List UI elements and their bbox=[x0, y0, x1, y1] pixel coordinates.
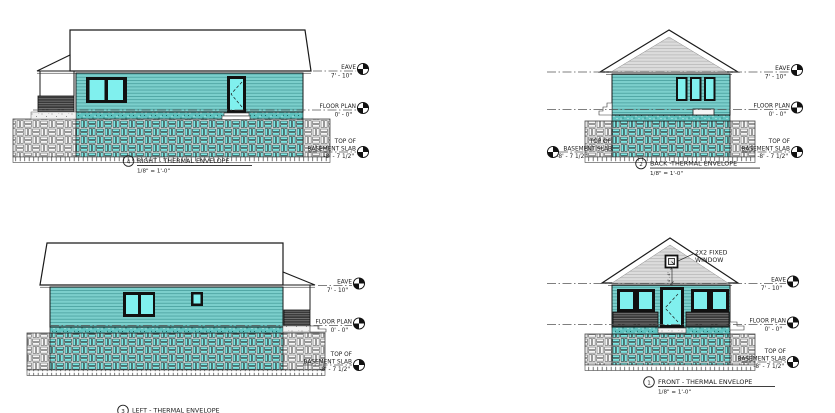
level-value: 7' - 10" bbox=[331, 74, 352, 80]
back-elevation-view: EAVE 7' - 10" FLOOR PLAN 0' - 0" TOP OF … bbox=[420, 0, 835, 200]
level-label: EAVE bbox=[341, 65, 356, 71]
datum-icon bbox=[787, 317, 798, 328]
datum-icon bbox=[353, 278, 364, 289]
window-pair bbox=[123, 292, 155, 317]
datum-icon bbox=[791, 102, 802, 113]
view-title-text: LEFT - THERMAL ENVELOPE bbox=[132, 407, 220, 413]
dimension-text: 4' - 4" bbox=[667, 271, 671, 282]
level-label: BASEMENT SLAB bbox=[303, 359, 352, 365]
porch-railing-left bbox=[613, 312, 658, 326]
view-number: 1 bbox=[647, 380, 651, 386]
level-label: BASEMENT SLAB bbox=[737, 356, 786, 362]
datum-icon bbox=[357, 146, 368, 157]
level-label: BASEMENT SLAB bbox=[741, 146, 790, 152]
level-value: -8' - 7 1/2" bbox=[556, 154, 587, 160]
foundation bbox=[27, 333, 325, 376]
roof bbox=[37, 30, 311, 73]
level-label: EAVE bbox=[771, 277, 786, 283]
porch-railing bbox=[284, 310, 310, 326]
level-label: TOP OF bbox=[589, 139, 611, 145]
porch-floor bbox=[31, 112, 76, 119]
level-label-floor: FLOOR PLAN 0' - 0" bbox=[319, 102, 368, 118]
roof bbox=[600, 30, 738, 75]
view-scale: 1/8" = 1'-0" bbox=[650, 171, 683, 177]
level-label: EAVE bbox=[337, 279, 352, 285]
view-number: 4 bbox=[127, 159, 131, 165]
porch-roof bbox=[283, 272, 315, 285]
level-label: EAVE bbox=[775, 66, 790, 72]
level-label: FLOOR PLAN bbox=[319, 104, 356, 110]
level-value: 0' - 0" bbox=[769, 112, 787, 118]
small-window bbox=[191, 292, 203, 306]
level-label-floor: FLOOR PLAN 0' - 0" bbox=[753, 102, 802, 118]
datum-icon bbox=[357, 63, 368, 74]
rim-band bbox=[612, 115, 730, 121]
left-elevation-view: EAVE 7' - 10" FLOOR PLAN 0' - 0" TOP OF … bbox=[0, 210, 420, 413]
right-elevation-view: EAVE 7' - 10" FLOOR PLAN 0' - 0" TOP OF … bbox=[0, 0, 420, 200]
level-label: TOP OF bbox=[764, 349, 786, 355]
foundation bbox=[13, 119, 330, 163]
foundation bbox=[585, 334, 755, 371]
view-title-text: FRONT - THERMAL ENVELOPE bbox=[658, 378, 752, 386]
level-label: TOP OF bbox=[768, 139, 790, 145]
steps bbox=[310, 326, 326, 332]
level-value: -8' - 7 1/2" bbox=[319, 367, 350, 373]
rim-band bbox=[50, 327, 283, 333]
front-elevation-view: 4' - 4" 2X2 FIXED WINDOW EAVE 7' - 10" F… bbox=[420, 210, 835, 413]
level-label: FLOOR PLAN bbox=[753, 103, 790, 109]
window-pair bbox=[86, 77, 127, 103]
level-value: 7' - 10" bbox=[761, 286, 782, 292]
gable-window bbox=[666, 256, 678, 268]
view-scale: 1/8" = 1'-0" bbox=[137, 169, 170, 175]
door bbox=[658, 287, 686, 333]
datum-icon bbox=[547, 146, 558, 157]
level-value: 7' - 10" bbox=[327, 288, 348, 294]
level-label: BASEMENT SLAB bbox=[307, 146, 356, 152]
level-value: 0' - 0" bbox=[765, 327, 783, 333]
door-step bbox=[224, 113, 249, 116]
level-label: FLOOR PLAN bbox=[749, 318, 786, 324]
steps-right bbox=[730, 322, 744, 330]
level-label: TOP OF bbox=[334, 139, 356, 145]
level-value: 0' - 0" bbox=[335, 113, 353, 119]
datum-icon bbox=[357, 102, 368, 113]
level-value: 0' - 0" bbox=[331, 328, 349, 334]
view-title-text: BACK -THERMAL ENVELOPE bbox=[650, 160, 737, 168]
level-value: -8' - 7 1/2" bbox=[757, 154, 788, 160]
footing-course bbox=[27, 370, 325, 376]
level-label: BASEMENT SLAB bbox=[563, 146, 612, 152]
level-label-eave: EAVE 7' - 10" bbox=[331, 63, 369, 79]
datum-icon bbox=[791, 64, 802, 75]
callout-text: WINDOW bbox=[695, 257, 723, 264]
view-title-text: RIGHT - THERMAL ENVELOPE bbox=[137, 157, 230, 165]
level-label: TOP OF bbox=[330, 352, 352, 358]
level-value: -8' - 7 1/2" bbox=[753, 364, 784, 370]
door-step bbox=[222, 116, 250, 120]
footing-course bbox=[585, 365, 755, 371]
level-label-eave: EAVE 7' - 10" bbox=[761, 276, 799, 292]
datum-icon bbox=[791, 146, 802, 157]
level-label: FLOOR PLAN bbox=[315, 319, 352, 325]
level-label-floor: FLOOR PLAN 0' - 0" bbox=[749, 317, 798, 333]
view-title: 3 LEFT - THERMAL ENVELOPE bbox=[118, 405, 220, 413]
window-pair-right bbox=[691, 289, 729, 312]
porch-railing-right bbox=[686, 312, 729, 326]
rim-band bbox=[76, 112, 303, 119]
level-label-eave: EAVE 7' - 10" bbox=[765, 64, 803, 80]
datum-icon bbox=[353, 318, 364, 329]
level-value: 7' - 10" bbox=[765, 75, 786, 81]
level-label-eave: EAVE 7' - 10" bbox=[327, 278, 365, 294]
window-pair-left bbox=[617, 289, 655, 312]
window-triple bbox=[676, 77, 716, 101]
porch-roof bbox=[37, 55, 70, 71]
level-value: -8' - 7 1/2" bbox=[323, 154, 354, 160]
door-step bbox=[658, 328, 686, 333]
view-scale: 1/8" = 1'-0" bbox=[658, 390, 691, 396]
datum-icon bbox=[787, 356, 798, 367]
datum-icon bbox=[787, 276, 798, 287]
view-title: 1 FRONT - THERMAL ENVELOPE 1/8" = 1'-0" bbox=[644, 377, 775, 396]
view-number: 3 bbox=[121, 409, 125, 413]
elevation-sheet: EAVE 7' - 10" FLOOR PLAN 0' - 0" TOP OF … bbox=[0, 0, 835, 413]
steps bbox=[599, 103, 612, 115]
datum-icon bbox=[353, 359, 364, 370]
wall bbox=[50, 287, 283, 327]
callout-text: 2X2 FIXED bbox=[695, 250, 728, 257]
roof bbox=[40, 243, 315, 287]
view-number: 2 bbox=[639, 162, 643, 168]
